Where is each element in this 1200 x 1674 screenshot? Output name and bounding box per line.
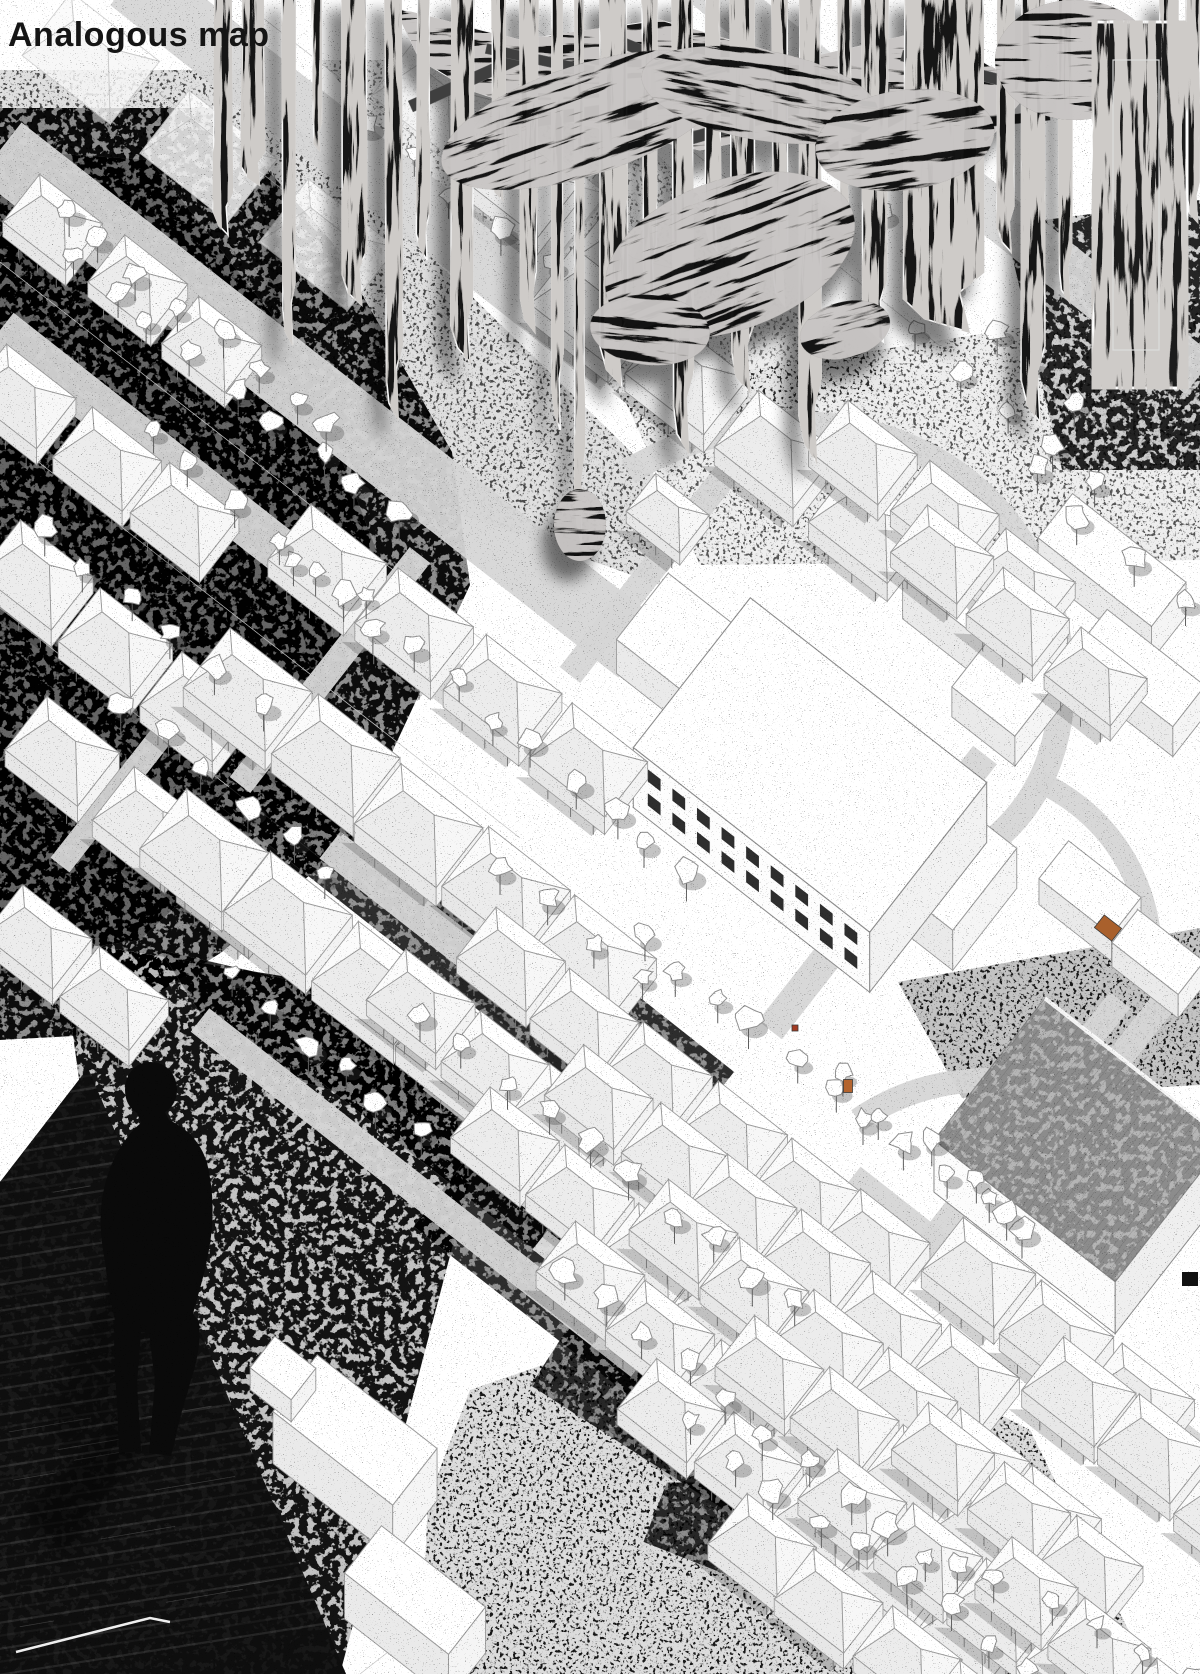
tower-frame — [1093, 22, 1187, 388]
map-canvas — [0, 0, 1200, 1674]
analogous-map-artwork: Analogous map — [0, 0, 1200, 1674]
page-title: Analogous map — [8, 16, 270, 55]
orange-accent — [844, 1080, 853, 1093]
orange-accent — [792, 1025, 798, 1031]
